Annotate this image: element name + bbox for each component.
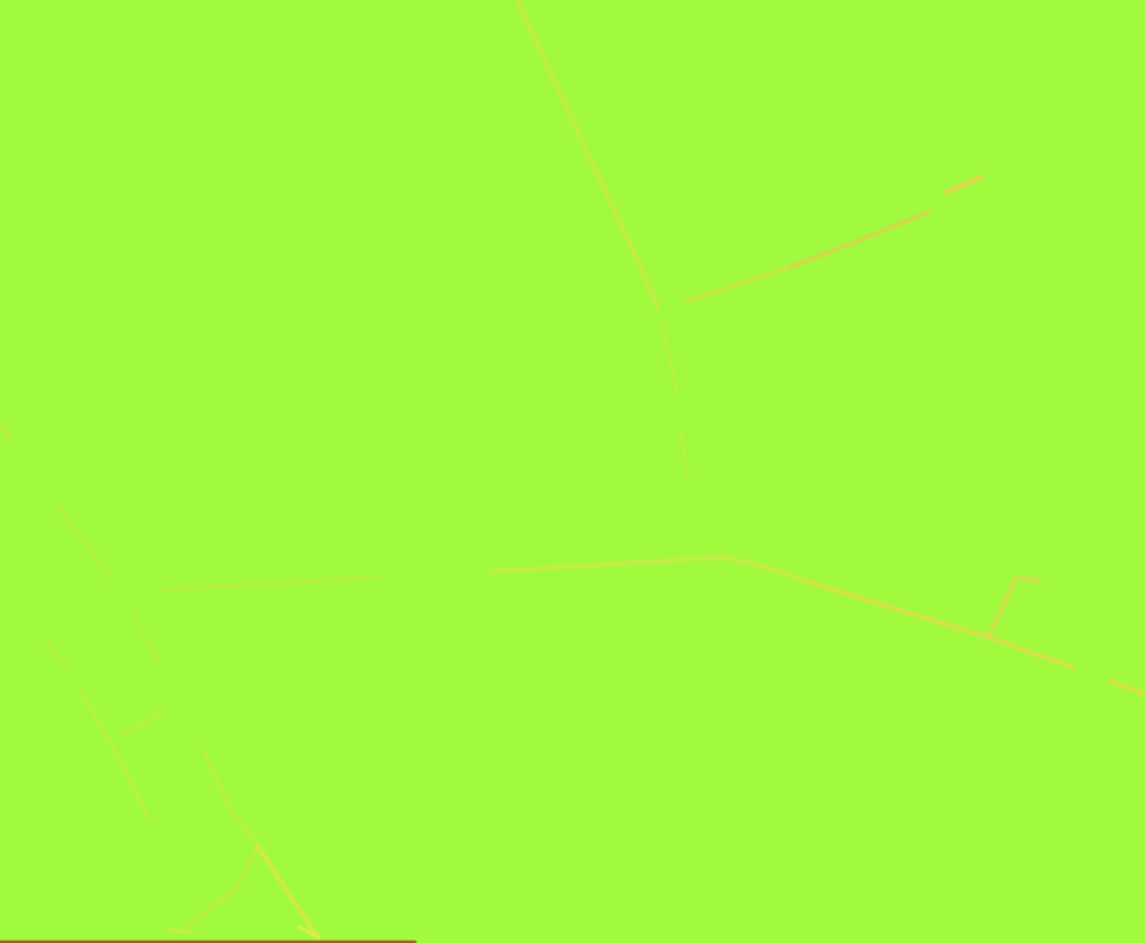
map-viewport[interactable] — [0, 0, 1145, 943]
terrain-background — [0, 0, 1145, 943]
map-roads-layer — [0, 0, 1145, 943]
